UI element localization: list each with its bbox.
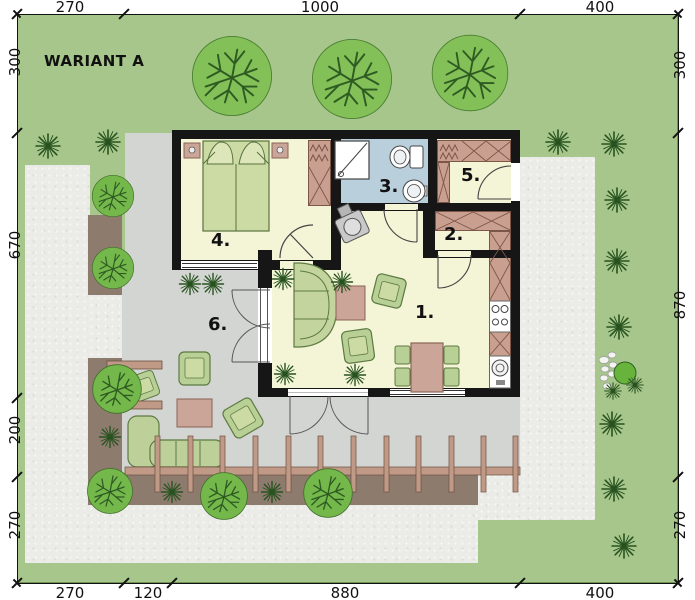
plan-title: WARIANT A	[44, 52, 144, 70]
dim-line-left	[17, 14, 18, 583]
walkway-west	[125, 133, 172, 273]
dim-bottom-4: 400	[570, 586, 630, 600]
room-label-storage: 5.	[461, 165, 480, 186]
door-storage-opening	[511, 163, 520, 201]
flower-bed-left-upper	[88, 215, 122, 295]
dim-top-3: 400	[570, 0, 630, 14]
dim-bottom-1: 270	[40, 586, 100, 600]
door-bathroom-opening	[385, 204, 418, 210]
dim-right-3: 270	[673, 505, 687, 545]
flower-bed-bottom	[88, 473, 478, 505]
living-floor	[266, 250, 511, 389]
dim-top-2: 1000	[285, 0, 355, 14]
dim-bottom-2: 120	[118, 586, 178, 600]
gravel-path-right	[520, 157, 595, 520]
dim-left-3: 200	[8, 410, 22, 450]
gravel-yard-bottom	[25, 505, 478, 563]
bedroom-wardrobe	[308, 140, 331, 206]
dim-bottom-3: 880	[315, 586, 375, 600]
window-living-opening	[390, 389, 465, 396]
wall-bathroom-east	[428, 139, 437, 211]
wall-bathroom-south	[331, 203, 520, 211]
dim-right-1: 300	[673, 45, 687, 85]
wall-west-bedroom	[172, 130, 181, 270]
window-bedroom-opening	[181, 261, 258, 269]
room-label-living: 1.	[415, 302, 434, 323]
dim-top-1: 270	[40, 0, 100, 14]
dim-left-1: 300	[8, 42, 22, 82]
room-label-terrace: 6.	[208, 314, 227, 335]
gravel-gap-left	[88, 295, 122, 358]
door-bedroom-opening	[280, 261, 313, 269]
gravel-connector	[478, 473, 520, 520]
door-french-west-opening	[258, 288, 272, 363]
wall-north	[172, 130, 520, 139]
dim-line-top	[17, 14, 678, 15]
terrace-south	[122, 397, 520, 473]
gravel-path-left	[25, 165, 90, 563]
storage-cabinet-top	[437, 140, 511, 162]
room-label-bedroom: 4.	[211, 230, 230, 251]
wall-living-west-upper	[258, 250, 272, 288]
dim-right-2: 870	[673, 285, 687, 325]
room-label-entry: 2.	[444, 224, 463, 245]
door-entry-opening	[438, 251, 471, 257]
dim-left-4: 270	[8, 505, 22, 545]
storage-cabinet-left	[437, 162, 450, 203]
door-french-south-opening	[288, 389, 368, 396]
wall-living-west-lower	[258, 363, 272, 389]
room-label-bathroom: 3.	[379, 176, 398, 197]
dim-left-2: 670	[8, 225, 22, 265]
site-plan: WARIANT A 1. 2. 3. 4. 5. 6. 270 1000 400…	[0, 0, 695, 600]
